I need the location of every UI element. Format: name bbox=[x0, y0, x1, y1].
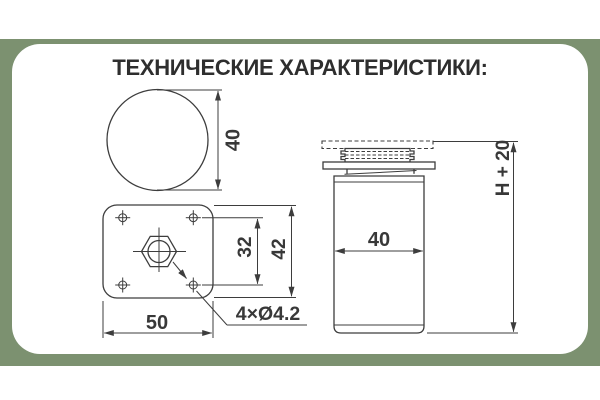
hole-top-left bbox=[115, 210, 130, 225]
mounting-plate-view: 32 42 50 4×Ø4.2 bbox=[103, 205, 307, 338]
hole-spacing-label: 32 bbox=[235, 236, 256, 257]
dimension-hole-spacing: 32 bbox=[202, 218, 263, 285]
top-diameter-label: 40 bbox=[222, 129, 244, 151]
adjuster-joint bbox=[345, 169, 417, 174]
flange-plate bbox=[323, 162, 435, 169]
plate-hidden-outline bbox=[322, 141, 433, 149]
dimension-leg-height: H + 20 bbox=[427, 140, 518, 333]
dimension-top-diameter: 40 bbox=[157, 90, 244, 190]
leg-height-label: H + 20 bbox=[493, 140, 514, 197]
holes-callout-label: 4×Ø4.2 bbox=[236, 303, 301, 325]
leg-width-label: 40 bbox=[368, 229, 390, 251]
threaded-stud bbox=[341, 149, 414, 163]
leg-top-view: 40 bbox=[107, 90, 244, 191]
hex-nut bbox=[133, 228, 186, 273]
dimension-leg-width: 40 bbox=[335, 229, 422, 251]
leg-body bbox=[334, 176, 424, 333]
leg-diameter-circle bbox=[107, 90, 208, 191]
hole-bottom-right bbox=[186, 278, 201, 293]
plate-width-label: 50 bbox=[146, 312, 168, 334]
leg-side-view: 40 H + 20 bbox=[322, 140, 518, 333]
hole-top-right bbox=[186, 210, 201, 225]
page: ТЕХНИЧЕСКИЕ ХАРАКТЕРИСТИКИ: 40 bbox=[0, 0, 600, 400]
holes-callout: 4×Ø4.2 bbox=[173, 262, 307, 325]
plate-height-label: 42 bbox=[269, 238, 290, 259]
technical-drawing: 40 bbox=[0, 0, 600, 400]
hole-bottom-left bbox=[115, 278, 130, 293]
dimension-plate-width: 50 bbox=[103, 301, 213, 338]
